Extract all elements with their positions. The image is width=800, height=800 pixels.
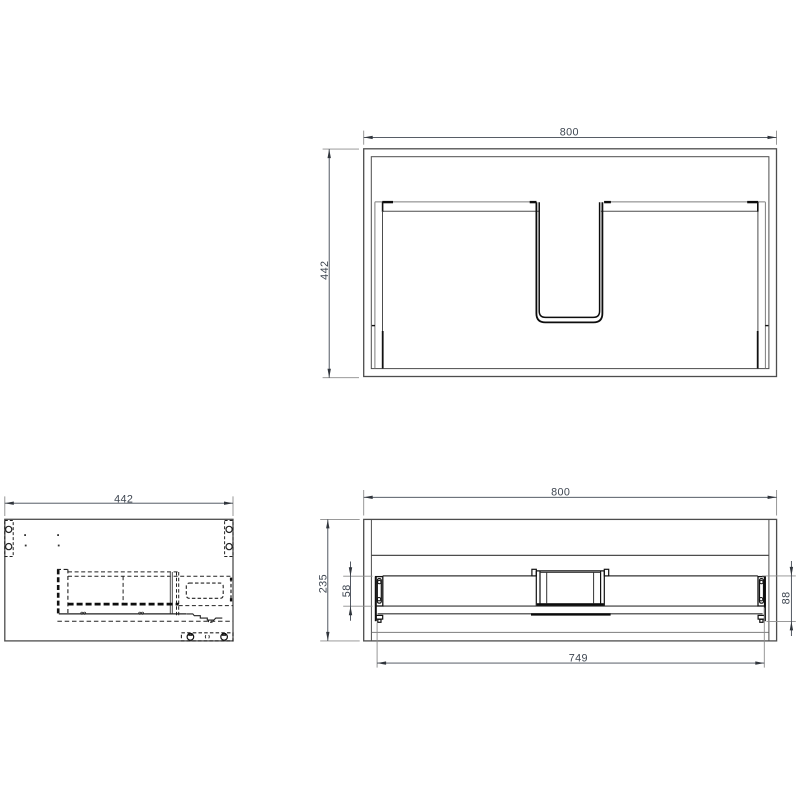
svg-text:88: 88 xyxy=(781,591,793,604)
svg-text:58: 58 xyxy=(341,584,353,597)
svg-text:800: 800 xyxy=(551,487,570,499)
svg-text:442: 442 xyxy=(319,261,331,280)
svg-text:235: 235 xyxy=(317,574,329,593)
svg-text:442: 442 xyxy=(114,493,133,505)
svg-text:800: 800 xyxy=(560,127,579,139)
svg-text:749: 749 xyxy=(569,653,588,665)
